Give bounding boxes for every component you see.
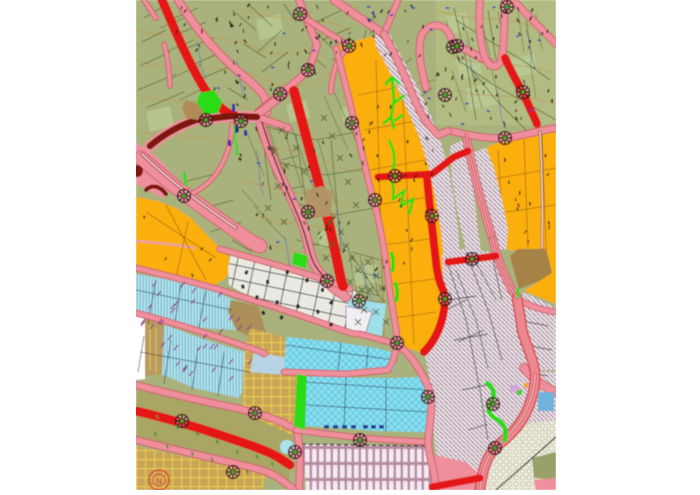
svg-text:N: N bbox=[156, 476, 163, 486]
